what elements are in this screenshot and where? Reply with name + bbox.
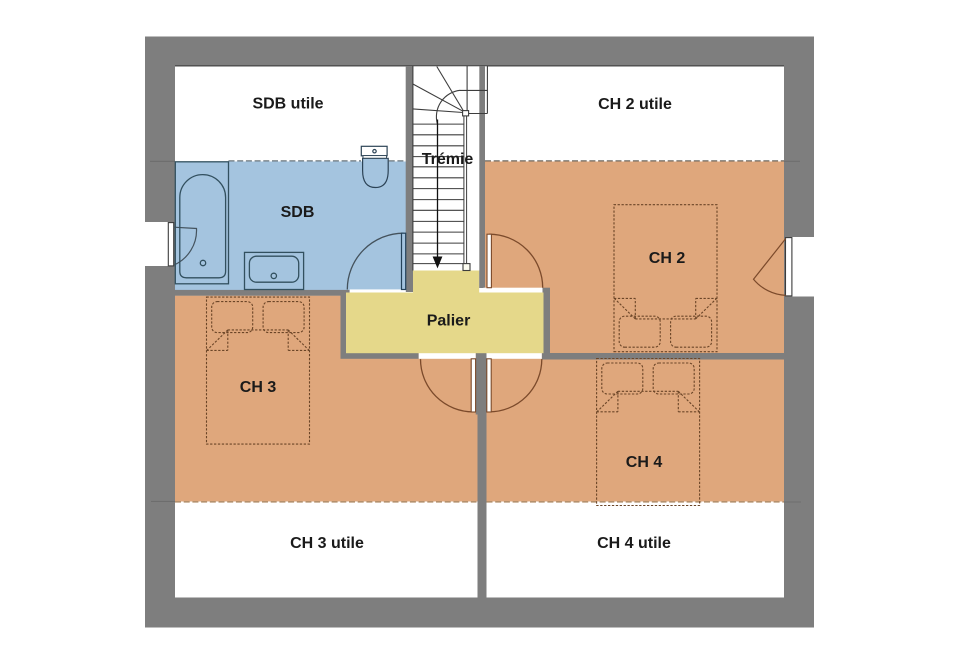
svg-text:CH 2: CH 2	[649, 250, 686, 267]
svg-text:SDB utile: SDB utile	[252, 96, 323, 113]
svg-text:Palier: Palier	[427, 313, 471, 330]
svg-text:CH 4 utile: CH 4 utile	[597, 535, 671, 552]
svg-text:CH 2 utile: CH 2 utile	[598, 96, 672, 113]
svg-text:SDB: SDB	[281, 204, 315, 221]
svg-text:CH 3 utile: CH 3 utile	[290, 535, 364, 552]
svg-text:CH 4: CH 4	[626, 454, 663, 471]
svg-text:CH 3: CH 3	[240, 379, 277, 396]
svg-text:Trémie: Trémie	[422, 151, 474, 168]
